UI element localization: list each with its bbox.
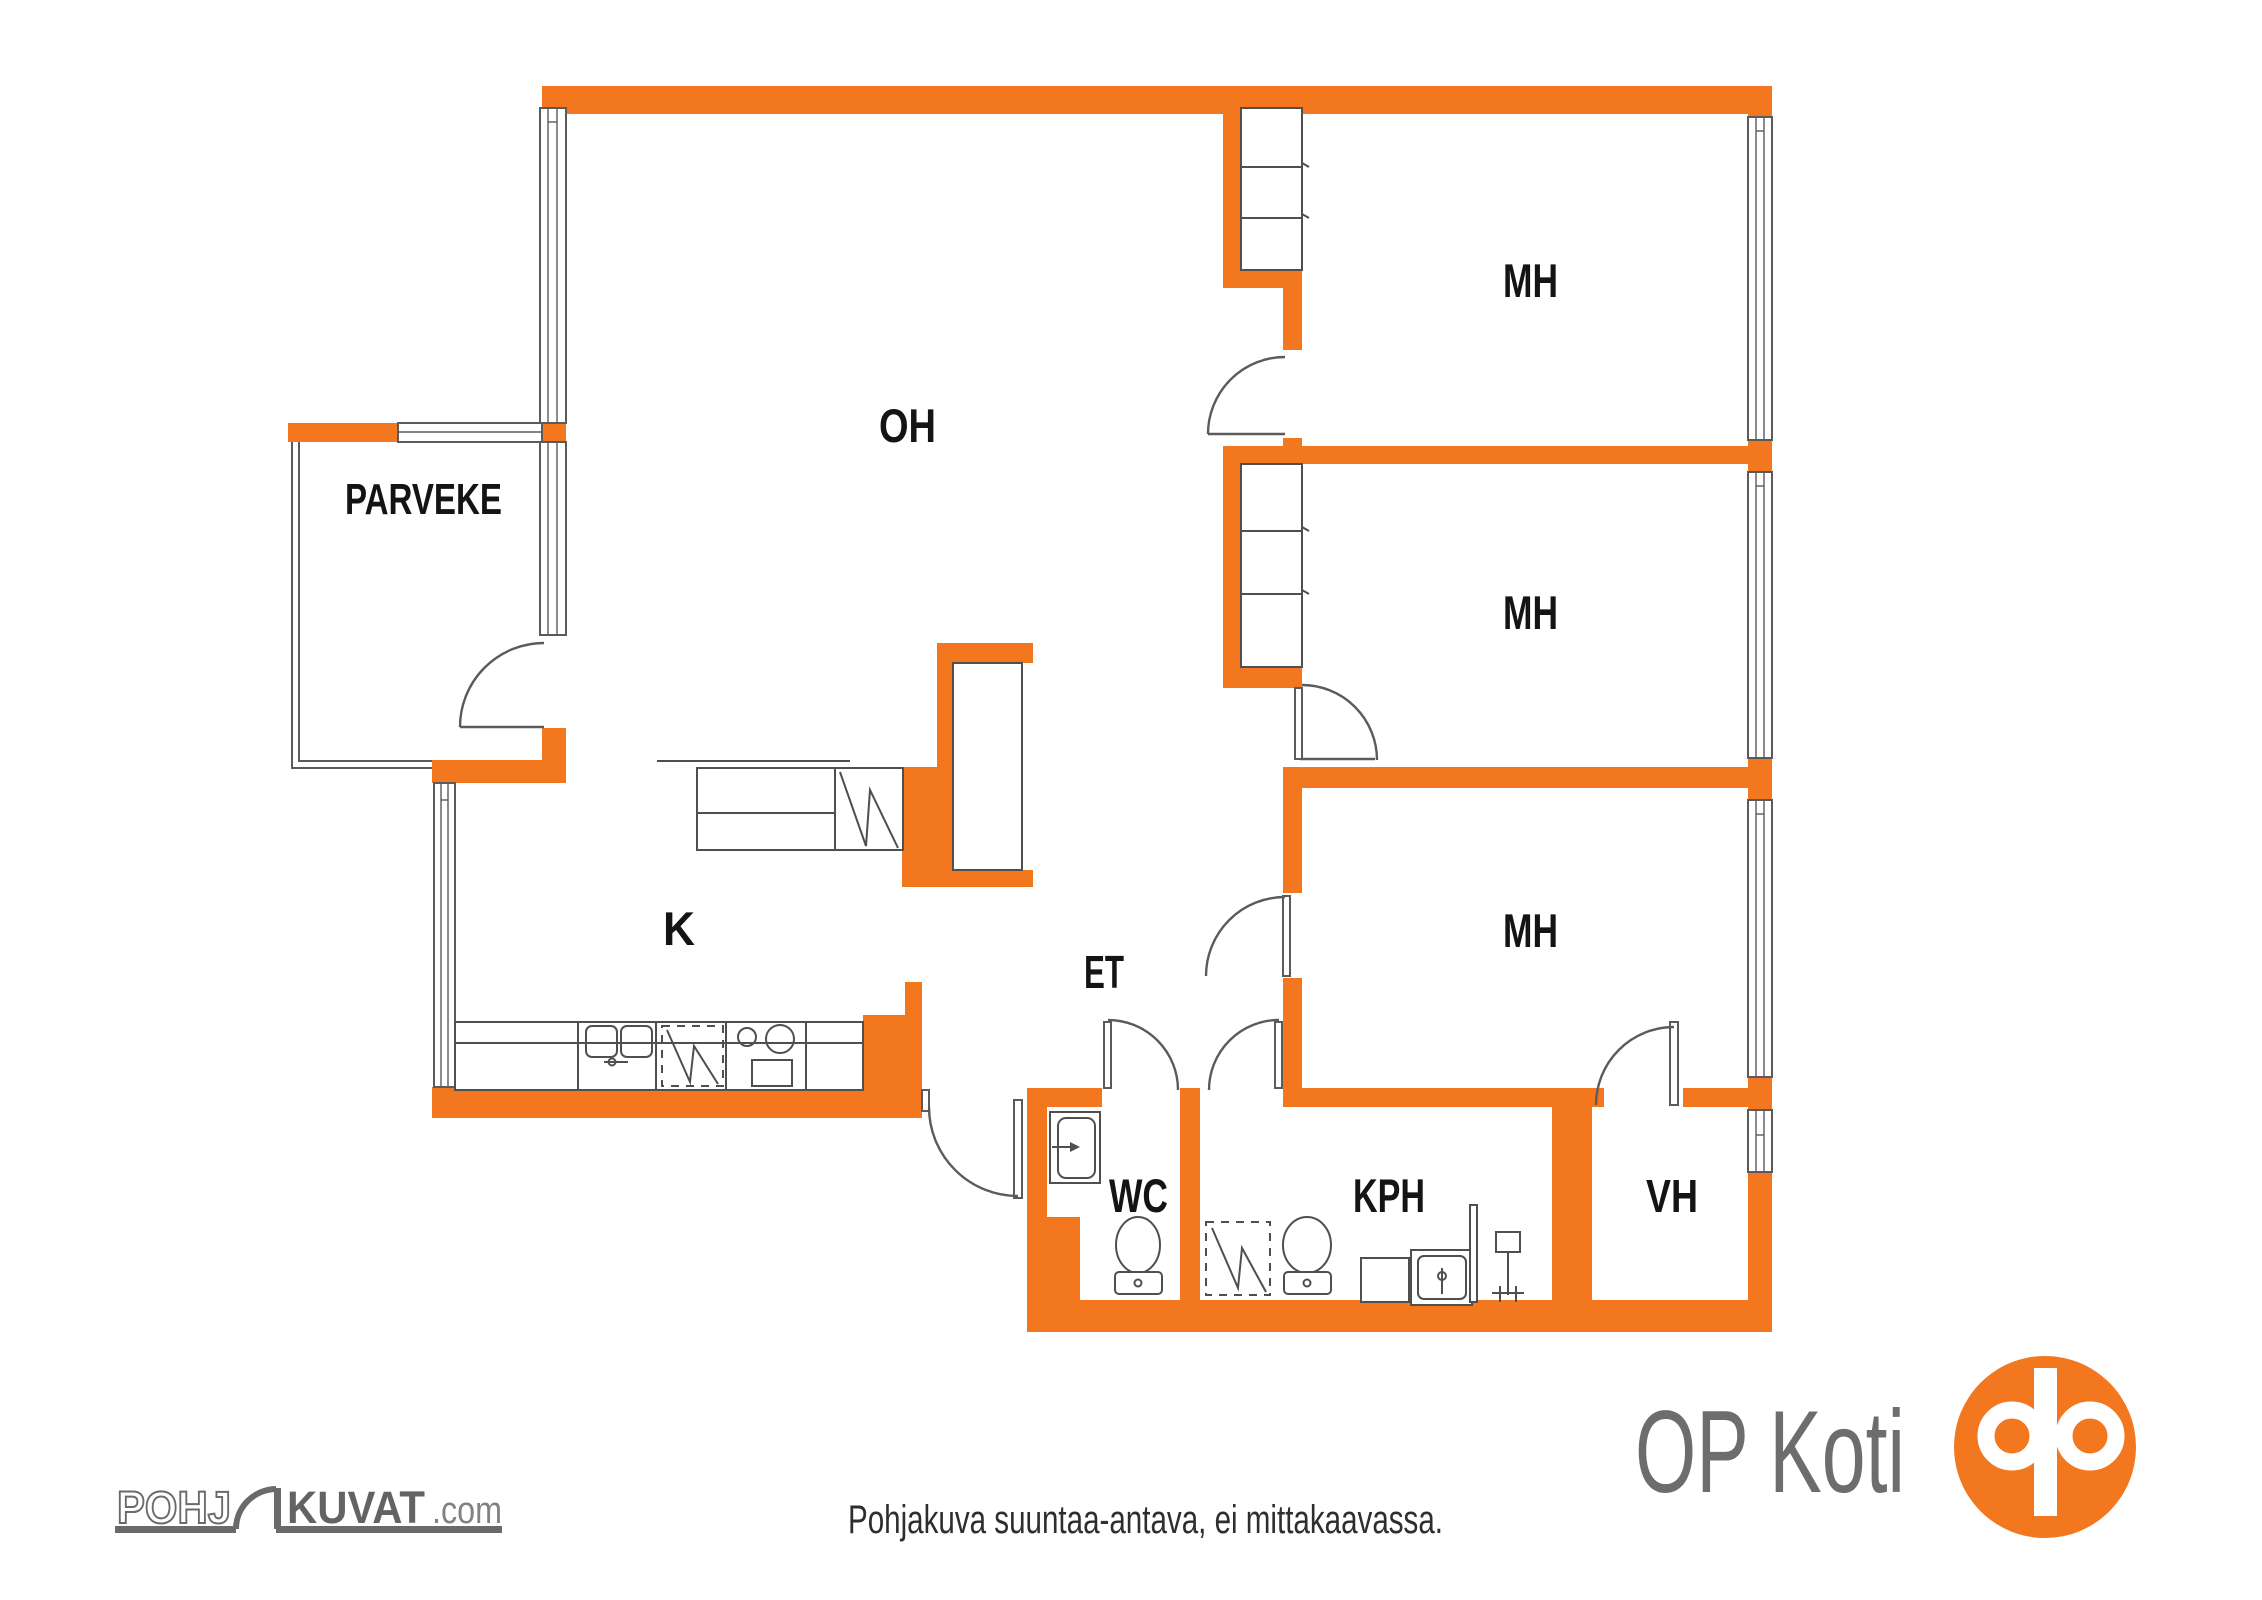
wc-basin-icon: [1050, 1112, 1100, 1183]
shaft: [953, 663, 1022, 870]
wall-parveke-top: [288, 423, 398, 442]
op-symbol-icon: [1954, 1356, 2136, 1538]
op-koti-wordmark: OP Koti: [1635, 1386, 1905, 1517]
wall-niche-jog: [1223, 270, 1302, 288]
room-label-et: ET: [1084, 946, 1124, 998]
wall-kph-vh-divider: [1552, 1105, 1592, 1332]
room-label-vh: VH: [1646, 1170, 1698, 1222]
wall-shaft-left-wide: [902, 767, 953, 887]
door-mh1: [1208, 357, 1285, 434]
closet-mh2: [1241, 464, 1309, 667]
wall-stub: [1283, 438, 1302, 464]
room-label-oh: OH: [879, 399, 936, 452]
wall-bottom: [1027, 1300, 1772, 1332]
wall-niche-column: [1223, 464, 1241, 683]
wall-niche-column: [1223, 108, 1241, 287]
door-entry: [922, 1090, 1022, 1198]
wall-vh-top: [1683, 1088, 1752, 1107]
wall-et-mh3: [1283, 978, 1302, 1088]
door-balcony: [460, 643, 544, 727]
door-mh2: [1295, 685, 1377, 760]
floor-plan-page: PARVEKE OH MH MH MH K ET WC KPH VH POHJ …: [0, 0, 2262, 1600]
window-oh-lower: [540, 442, 566, 635]
wall-shaft-bottom: [953, 870, 1033, 887]
pohjakuvat-suffix-text: .com: [432, 1490, 502, 1532]
wall-niche-band: [1223, 667, 1302, 688]
wall-mh2-mh3-divider: [1283, 767, 1772, 788]
window-kitchen: [434, 783, 455, 1087]
op-koti-logo: OP Koti: [1635, 1356, 2136, 1538]
wall-shaft-left: [937, 663, 953, 767]
kitchen-counter: [455, 1022, 863, 1090]
wall-wc-kph-divider: [1180, 1088, 1200, 1332]
wall-right-corner: [1748, 86, 1772, 117]
wall-wc-left: [1027, 1088, 1047, 1332]
room-label-kph: KPH: [1353, 1169, 1425, 1222]
wall-top: [542, 86, 1772, 114]
wall-stub: [1283, 288, 1302, 350]
window-mh2: [1748, 472, 1772, 758]
wall-kph-top: [1283, 1088, 1604, 1107]
window-balcony-railing: [398, 423, 542, 442]
door-kph: [1209, 1020, 1282, 1090]
wall-pier: [542, 423, 566, 442]
room-label-wc: WC: [1109, 1169, 1168, 1222]
logo-door-arc-icon: [236, 1489, 276, 1529]
door-wc: [1104, 1020, 1178, 1090]
wall-et-mh3: [1283, 788, 1302, 893]
pohjakuvat-logo: POHJ KUVAT .com: [115, 1482, 502, 1533]
pohjakuvat-solid-text: KUVAT: [287, 1482, 425, 1533]
windows: [398, 108, 1772, 1172]
room-label-mh3: MH: [1503, 904, 1558, 957]
door-mh3: [1206, 896, 1290, 976]
washing-machine-icon: [1206, 1222, 1270, 1295]
disclaimer-text: Pohjakuva suuntaa-antava, ei mittakaavas…: [848, 1498, 1443, 1542]
room-label-mh1: MH: [1503, 254, 1558, 307]
window-vh: [1748, 1110, 1772, 1172]
door-vh: [1596, 1022, 1678, 1105]
window-mh1: [1748, 117, 1772, 440]
room-label-mh2: MH: [1503, 586, 1558, 639]
kitchen-tall-cabinets: [657, 761, 903, 850]
pohjakuvat-outline-text: POHJ: [117, 1482, 231, 1533]
wall-k-et: [905, 982, 922, 1090]
room-label-k: K: [663, 902, 695, 955]
wall-mh1-mh2-divider: [1223, 446, 1772, 464]
logo-door-leaf-icon: [274, 1488, 281, 1529]
closet-mh1: [1241, 108, 1309, 270]
window-oh-upper: [540, 108, 566, 423]
floor-plan-svg: PARVEKE OH MH MH MH K ET WC KPH VH POHJ …: [0, 0, 2262, 1600]
wall-balcony-stub: [542, 728, 566, 762]
kph-toilet-icon: [1283, 1217, 1331, 1294]
wall-kitchen-bottom: [432, 1087, 922, 1118]
window-mh3: [1748, 800, 1772, 1077]
wall-shaft-top: [937, 643, 1033, 663]
shower-mixer-icon: [1492, 1232, 1524, 1302]
wc-toilet-icon: [1115, 1217, 1162, 1294]
wall-k-et-block: [863, 1015, 905, 1090]
room-label-parveke: PARVEKE: [345, 475, 502, 524]
wall-left-band: [432, 760, 566, 783]
